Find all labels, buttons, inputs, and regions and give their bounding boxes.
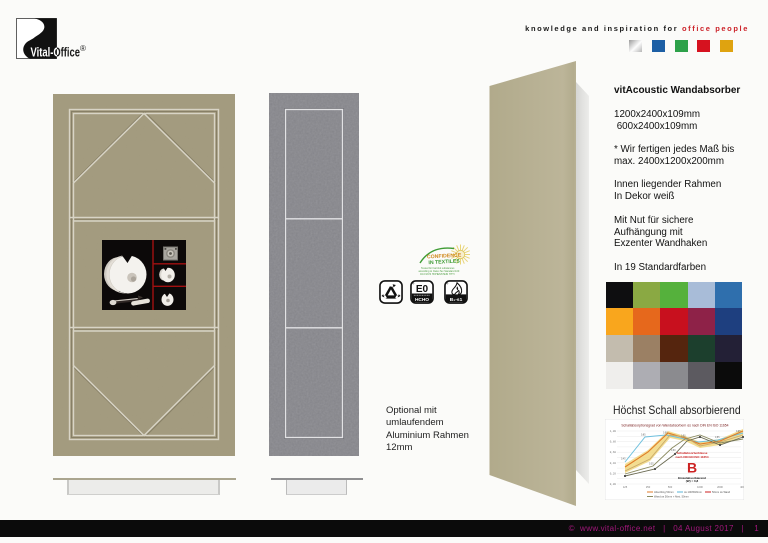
svg-text:2000: 2000 (717, 485, 723, 489)
svg-text:0,45: 0,45 (621, 459, 626, 461)
svg-text:E0: E0 (416, 284, 429, 295)
svg-text:0,80: 0,80 (610, 441, 617, 444)
svg-text:Schallabsorptionsgrad von Wand: Schallabsorptionsgrad von Wandabsorbern … (621, 424, 728, 428)
svg-text:0,40: 0,40 (610, 462, 617, 465)
svg-text:B₂-s1: B₂-s1 (449, 296, 462, 302)
svg-text:0,00: 0,00 (610, 483, 617, 486)
svg-text:04.0.9374 HOHENSTEIN HTTI: 04.0.9374 HOHENSTEIN HTTI (420, 273, 455, 276)
svg-text:0,90: 0,90 (681, 436, 686, 438)
svg-text:®: ® (80, 44, 86, 53)
svg-text:1,00: 1,00 (610, 430, 617, 433)
svg-text:0,95: 0,95 (736, 431, 741, 433)
svg-text:0,90: 0,90 (663, 433, 668, 435)
svg-text:0,85: 0,85 (715, 437, 720, 439)
svg-text:4000: 4000 (740, 485, 744, 489)
svg-text:IN TEXTILES: IN TEXTILES (428, 259, 460, 267)
svg-text:B: B (687, 460, 697, 476)
svg-text:50mm αs Wand: 50mm αs Wand (712, 490, 731, 494)
svg-text:nach DIN EN ISO 11654: nach DIN EN ISO 11654 (675, 455, 708, 459)
svg-text:®: ® (412, 282, 414, 285)
svg-text:125: 125 (623, 485, 628, 489)
svg-text:0,60: 0,60 (610, 451, 617, 454)
svg-text:0,60: 0,60 (671, 450, 676, 452)
svg-text:1000: 1000 (697, 485, 703, 489)
svg-text:HCHO: HCHO (415, 297, 429, 303)
svg-text:250: 250 (646, 485, 651, 489)
svg-text:0,20: 0,20 (610, 472, 617, 475)
svg-text:0,85: 0,85 (641, 435, 646, 437)
svg-text:(W) = 0,8: (W) = 0,8 (686, 479, 699, 483)
svg-text:®: ® (446, 282, 448, 285)
svg-text:Wand αs 50mm + Abst. 50mm: Wand αs 50mm + Abst. 50mm (654, 495, 689, 499)
svg-text:Absorbing 50mm: Absorbing 50mm (654, 490, 674, 494)
svg-text:αs 100/50/0mm: αs 100/50/0mm (684, 490, 702, 494)
svg-text:0,35: 0,35 (649, 464, 654, 466)
svg-text:500: 500 (668, 485, 673, 489)
